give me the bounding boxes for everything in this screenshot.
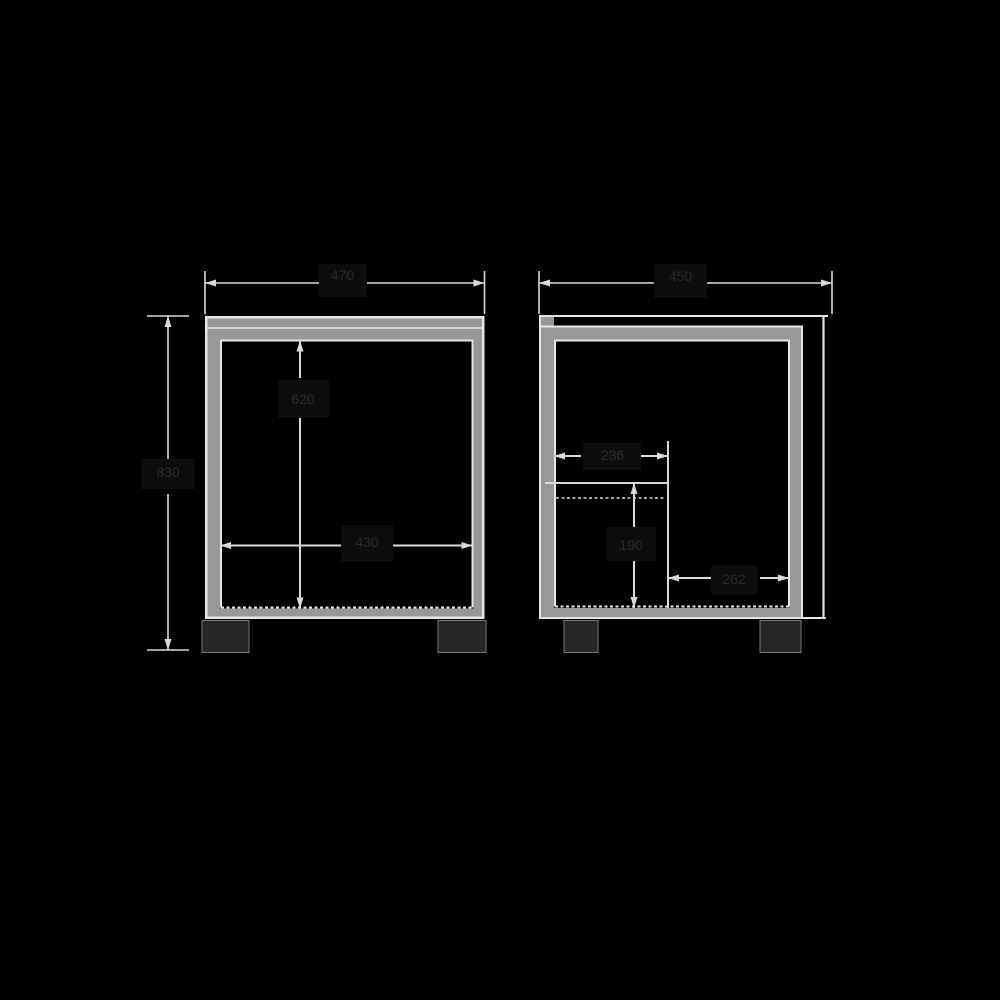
svg-text:262: 262 <box>722 571 746 587</box>
svg-text:450: 450 <box>669 268 693 284</box>
svg-text:430: 430 <box>355 534 379 550</box>
svg-text:830: 830 <box>156 464 180 480</box>
svg-text:470: 470 <box>331 267 355 283</box>
svg-text:620: 620 <box>291 391 315 407</box>
svg-text:190: 190 <box>619 537 643 553</box>
svg-text:236: 236 <box>601 447 625 463</box>
